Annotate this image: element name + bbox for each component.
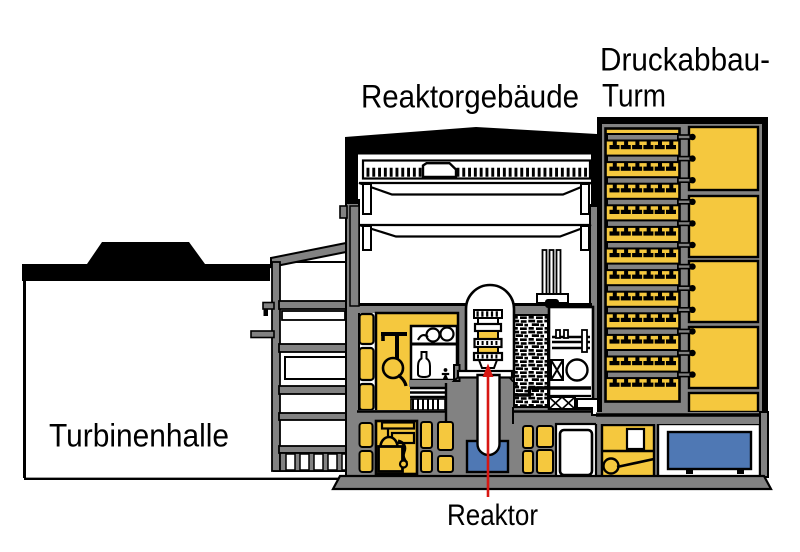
svg-text:Reaktor: Reaktor [447,499,538,532]
svg-text:Reaktorgebäude: Reaktorgebäude [361,79,579,115]
svg-text:Turm: Turm [602,78,666,114]
svg-text:Turbinenhalle: Turbinenhalle [49,418,229,454]
svg-text:Druckabbau-: Druckabbau- [600,42,770,78]
